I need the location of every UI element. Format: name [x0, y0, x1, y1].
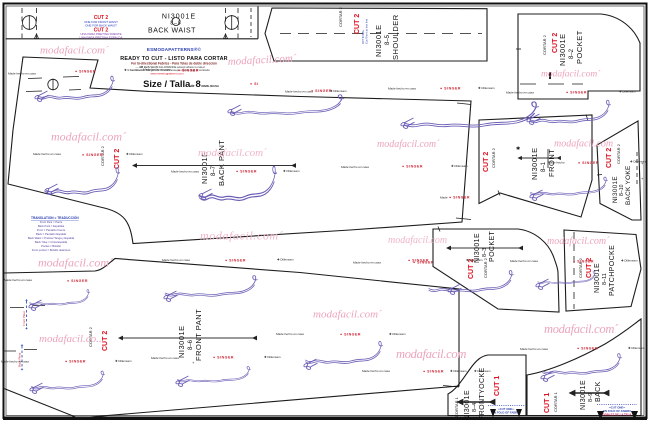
svg-text:TRANSLATION = TRADUCCIÓN: TRANSLATION = TRADUCCIÓN: [31, 215, 79, 220]
svg-text:✦: ✦: [25, 298, 29, 303]
svg-text:● SINGER: ● SINGER: [65, 360, 86, 364]
svg-text:CORTAR 2: CORTAR 2: [578, 257, 583, 278]
svg-text:● SINGER: ● SINGER: [178, 69, 199, 73]
svg-text:modafacil.com´: modafacil.com´: [313, 309, 382, 321]
svg-text:Back Waist = Pretina/ Tanga y: Back Waist = Pretina/ Tanga y Espalda: [28, 236, 75, 240]
svg-text:CUT 1: CUT 1: [494, 376, 501, 396]
svg-text:NI3001E: NI3001E: [374, 24, 383, 57]
svg-text:BACK YOKE: BACK YOKE: [625, 165, 632, 205]
svg-text:CORTAR 2: CORTAR 2: [338, 6, 343, 27]
svg-text:PATCHPOCKE: PATCHPOCKE: [609, 245, 616, 296]
svg-text:UNA PARA PRETINA ESPALDA: UNA PARA PRETINA ESPALDA: [80, 36, 123, 40]
svg-text:● SINGER: ● SINGER: [423, 370, 444, 374]
svg-text:✦: ✦: [20, 343, 24, 348]
svg-text:NI3001E: NI3001E: [177, 325, 186, 358]
svg-text:modafacil.com: modafacil.com: [396, 347, 466, 361]
svg-text:FRONT PANT: FRONT PANT: [194, 309, 203, 361]
svg-text:✚ Dillensam: ✚ Dillensam: [126, 152, 143, 156]
svg-text:CORTAR 1: CORTAR 1: [553, 391, 558, 412]
svg-text:Cut Short at this line: Cut Short at this line: [365, 18, 369, 44]
svg-text:Back = Pantalón Espalda: Back = Pantalón Espalda: [36, 232, 67, 236]
svg-text:✚ Dillensam: ✚ Dillensam: [621, 259, 638, 263]
svg-text:8–4: 8–4: [472, 403, 478, 412]
svg-text:✚ Dillensam: ✚ Dillensam: [283, 169, 300, 173]
svg-text:ON FOLD OF FABRIC: ON FOLD OF FABRIC: [492, 411, 520, 415]
svg-text:CUT 2: CUT 2: [483, 152, 490, 172]
svg-text:Pocket = Bolsillo: Pocket = Bolsillo: [41, 244, 61, 248]
svg-text:✚ Dillensam: ✚ Dillensam: [474, 369, 491, 373]
svg-text:✚ Dillensam: ✚ Dillensam: [389, 332, 406, 336]
svg-text:● SINGER: ● SINGER: [577, 347, 598, 351]
svg-text:CUT 1: CUT 1: [544, 393, 551, 413]
svg-text:✚ Dillensam: ✚ Dillensam: [330, 89, 347, 93]
svg-text:8–8: 8–8: [170, 21, 181, 27]
svg-text:● SINGER: ● SINGER: [440, 87, 461, 91]
svg-text:Made hecho en casa: Made hecho en casa: [4, 278, 32, 282]
svg-text:Back Pant = Espaldas: Back Pant = Espaldas: [38, 224, 65, 228]
svg-text:Made hecho: Made hecho: [548, 161, 565, 165]
svg-text:● SINGER: ● SINGER: [449, 196, 470, 200]
svg-text:● SINGER: ● SINGER: [67, 279, 88, 283]
svg-text:CUT 2: CUT 2: [114, 149, 121, 169]
svg-text:POCKET: POCKET: [575, 30, 584, 64]
svg-text:modafacil.com´: modafacil.com´: [544, 322, 619, 336]
svg-text:● SINGER: ● SINGER: [82, 153, 103, 157]
svg-text:Made hecho en casa: Made hecho en casa: [143, 68, 171, 72]
svg-text:✚ Dillensam: ✚ Dillensam: [478, 86, 495, 90]
svg-text:✚ Dillensam: ✚ Dillensam: [466, 258, 483, 262]
svg-text:● SINGER: ● SINGER: [578, 161, 599, 165]
svg-text:Made hecho en casa: Made hecho en casa: [506, 91, 534, 95]
svg-text:Made hecho en casa: Made hecho en casa: [353, 261, 381, 265]
svg-text:✚ Dillensam: ✚ Dillensam: [630, 160, 647, 164]
svg-text:CORTAR 2: CORTAR 2: [483, 257, 488, 278]
svg-text:● SINGER: ● SINGER: [75, 70, 96, 74]
svg-text:✱: ✱: [516, 146, 520, 152]
svg-text:● SI: ● SI: [250, 82, 259, 86]
svg-text:CUT 2: CUT 2: [606, 148, 613, 168]
svg-text:modafacil.com: modafacil.com: [388, 235, 447, 246]
svg-text:Made hecho en casa: Made hecho en casa: [8, 72, 36, 76]
svg-text:✚ Dillensam: ✚ Dillensam: [451, 164, 468, 168]
svg-text:modafacil.com´: modafacil.com´: [547, 236, 610, 247]
svg-text:● SINGER: ● SINGER: [408, 259, 429, 263]
svg-text:✚ Dillensam: ✚ Dillensam: [450, 369, 467, 373]
svg-text:Made: Made: [440, 196, 448, 200]
svg-text:Made hecho en casa: Made hecho en casa: [171, 170, 199, 174]
svg-text:CORTAR 2: CORTAR 2: [491, 147, 496, 168]
svg-text:CORTAR 2: CORTAR 2: [542, 34, 547, 55]
svg-text:NI3001E: NI3001E: [530, 147, 539, 180]
svg-text:modafacil.com´: modafacil.com´: [40, 45, 109, 57]
svg-text:ESMODAPATTERNS®©: ESMODAPATTERNS®©: [147, 46, 202, 52]
svg-text:modafacil.com´: modafacil.com´: [51, 130, 127, 144]
svg-text:modafacil.co...: modafacil.co...: [39, 333, 104, 345]
svg-text:● SINGER: ● SINGER: [340, 333, 361, 337]
svg-text:Made hecho en casa: Made hecho en casa: [285, 90, 313, 94]
svg-text:Front pocket = Bolsillo delant: Front pocket = Bolsillo delantero: [32, 248, 71, 252]
svg-text:Made hecho en casa: Made hecho en casa: [520, 347, 548, 351]
svg-text:BACK WAIST: BACK WAIST: [148, 28, 196, 35]
svg-text:Made hecho en casa: Made hecho en casa: [151, 356, 179, 360]
svg-text:NI3001E: NI3001E: [612, 176, 619, 203]
svg-text:Made hecho en casa: Made hecho en casa: [33, 152, 61, 156]
svg-text:modafacil.com: modafacil.com: [554, 139, 613, 150]
svg-text:CUT 2: CUT 2: [586, 258, 593, 278]
svg-text:✚ Dillensam: ✚ Dillensam: [264, 355, 281, 359]
svg-text:modafacil.com´: modafacil.com´: [198, 147, 267, 159]
svg-text:BACK: BACK: [595, 381, 602, 402]
svg-text:Front = Pantalón Frente: Front = Pantalón Frente: [37, 228, 66, 232]
svg-text:Made hecho en casa: Made hecho en casa: [510, 259, 538, 263]
svg-text:Made hecho en casa: Made hecho en casa: [276, 332, 304, 336]
svg-text:Made hecho en casa: Made hecho en casa: [362, 369, 390, 373]
svg-text:NI3001E: NI3001E: [464, 390, 471, 420]
svg-text:Front Pleat: Front Pleat: [22, 311, 26, 326]
svg-text:● SINGER: ● SINGER: [236, 170, 257, 174]
svg-text:POCKET: POCKET: [489, 230, 496, 262]
svg-text:modafacil.com´: modafacil.com´: [541, 69, 601, 80]
svg-text:✚ Dillensam: ✚ Dillensam: [619, 90, 636, 94]
svg-text:CORTAR 1: CORTAR 1: [454, 396, 459, 417]
svg-text:modafacil.com´: modafacil.com´: [377, 139, 440, 150]
svg-text:● SINGER: ● SINGER: [225, 259, 246, 263]
svg-text:✚ Dillensam: ✚ Dillensam: [115, 359, 132, 363]
svg-text:Made hecho en casa: Made hecho en casa: [388, 87, 416, 91]
svg-text:Made hecho en casa: Made hecho en casa: [1, 360, 29, 364]
svg-text:FRONTYOCKE: FRONTYOCKE: [479, 367, 486, 420]
svg-text:DOBLEZ DE LA TELA: DOBLEZ DE LA TELA: [603, 413, 632, 417]
svg-text:CUT 2: CUT 2: [354, 14, 361, 34]
svg-text:● SINGER: ● SINGER: [311, 89, 332, 93]
svg-text:Front Pant = Pants: Front Pant = Pants: [40, 220, 63, 224]
svg-text:modafacil.com´: modafacil.com´: [200, 229, 284, 243]
svg-text:NI3001E: NI3001E: [558, 33, 567, 66]
svg-text:Made hecho en casa: Made hecho en casa: [162, 258, 190, 262]
svg-text:Made hecho en casa: Made hecho en casa: [341, 165, 369, 169]
svg-text:8–3: 8–3: [482, 248, 488, 257]
svg-text:● SINGER: ● SINGER: [402, 165, 423, 169]
svg-text:modafacil.com´: modafacil.com´: [38, 256, 114, 270]
svg-text:NI3001E: NI3001E: [594, 263, 601, 293]
svg-text:● SINGER: ● SINGER: [566, 91, 587, 95]
svg-text:CORTAR 2: CORTAR 2: [616, 143, 621, 164]
svg-text:8–9: 8–9: [588, 393, 594, 402]
svg-text:NI3001E: NI3001E: [580, 380, 587, 410]
svg-text:✚ Dillensam: ✚ Dillensam: [628, 346, 645, 350]
svg-text:SHOULDER: SHOULDER: [391, 14, 400, 60]
svg-text:Back Yoke = Cinta Espalda: Back Yoke = Cinta Espalda: [35, 240, 68, 244]
svg-text:● SINGER: ● SINGER: [213, 356, 234, 360]
svg-text:8–11: 8–11: [602, 273, 608, 285]
svg-text:✚ Dillensam: ✚ Dillensam: [277, 258, 294, 262]
